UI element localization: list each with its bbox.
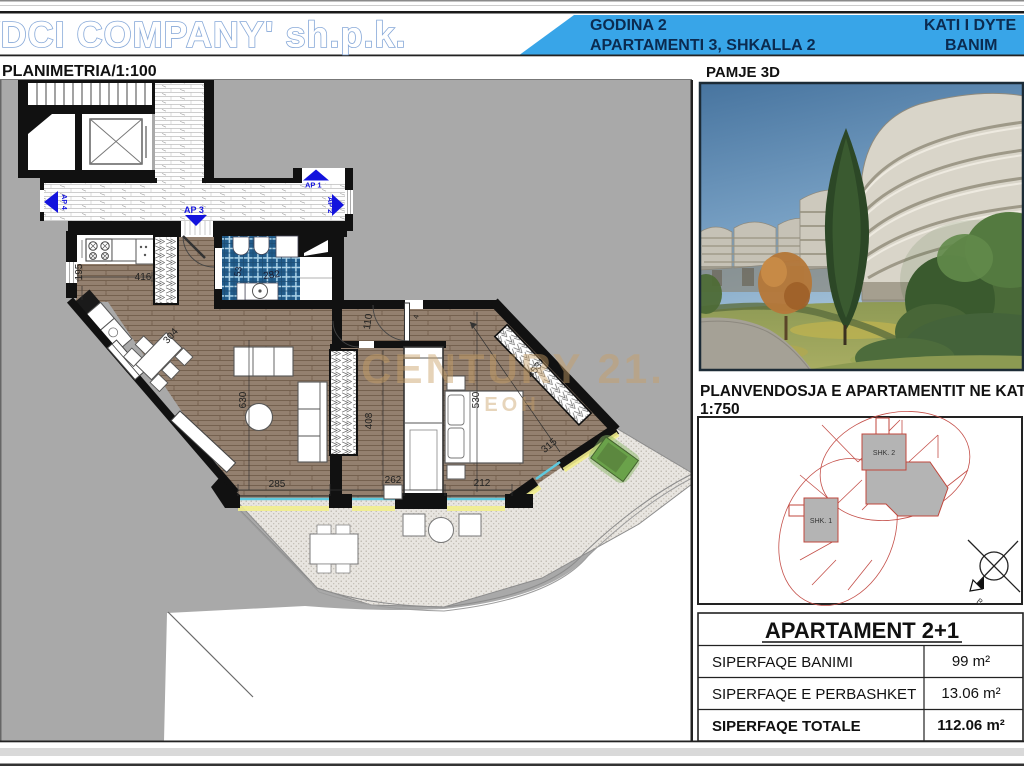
svg-text:EOH: EOH: [484, 394, 539, 416]
svg-text:SHK. 2: SHK. 2: [873, 450, 895, 457]
svg-text:PLANIMETRIA/1:100: PLANIMETRIA/1:100: [2, 63, 157, 80]
svg-text:AP 4: AP 4: [60, 194, 67, 210]
svg-text:PAMJE 3D: PAMJE 3D: [706, 64, 780, 81]
svg-text:212: 212: [474, 478, 491, 489]
svg-text:416: 416: [135, 272, 152, 283]
svg-text:GODINA 2: GODINA 2: [590, 17, 667, 34]
svg-text:KATI I DYTE: KATI I DYTE: [924, 17, 1016, 34]
svg-text:13.06 m²: 13.06 m²: [941, 685, 1000, 702]
svg-text:262: 262: [385, 475, 402, 486]
svg-text:99 m²: 99 m²: [952, 653, 990, 670]
svg-text:AP 2: AP 2: [326, 197, 335, 214]
svg-text:SIPERFAQE BANIMI: SIPERFAQE BANIMI: [712, 654, 853, 671]
svg-text:SHK. 1: SHK. 1: [810, 518, 832, 525]
svg-text:BANIM: BANIM: [945, 37, 997, 54]
svg-text:112.06 m²: 112.06 m²: [937, 717, 1005, 734]
svg-text:AP 1: AP 1: [305, 181, 322, 190]
svg-text:630: 630: [238, 391, 249, 408]
svg-text:SIPERFAQE TOTALE: SIPERFAQE TOTALE: [712, 718, 861, 735]
svg-text:530: 530: [471, 391, 482, 408]
svg-text:PLANVENDOSJA E APARTAMENTIT NE: PLANVENDOSJA E APARTAMENTIT NE KATIN: [700, 383, 1024, 400]
svg-text:1:750: 1:750: [700, 401, 740, 418]
svg-text:'VDCI COMPANY' sh.p.k.: 'VDCI COMPANY' sh.p.k.: [0, 14, 407, 55]
svg-text:285: 285: [269, 479, 286, 490]
svg-text:APARTAMENTI 3, SHKALLA 2: APARTAMENTI 3, SHKALLA 2: [590, 37, 816, 54]
svg-text:SIPERFAQE E PERBASHKET: SIPERFAQE E PERBASHKET: [712, 686, 916, 703]
svg-text:CENTURY 21.: CENTURY 21.: [361, 345, 665, 392]
svg-text:110: 110: [362, 313, 375, 331]
svg-text:408: 408: [364, 412, 375, 429]
svg-text:APARTAMENT 2+1: APARTAMENT 2+1: [765, 618, 959, 643]
svg-text:AP 3: AP 3: [184, 205, 204, 215]
svg-text:195: 195: [74, 263, 85, 280]
svg-text:53: 53: [232, 266, 244, 278]
